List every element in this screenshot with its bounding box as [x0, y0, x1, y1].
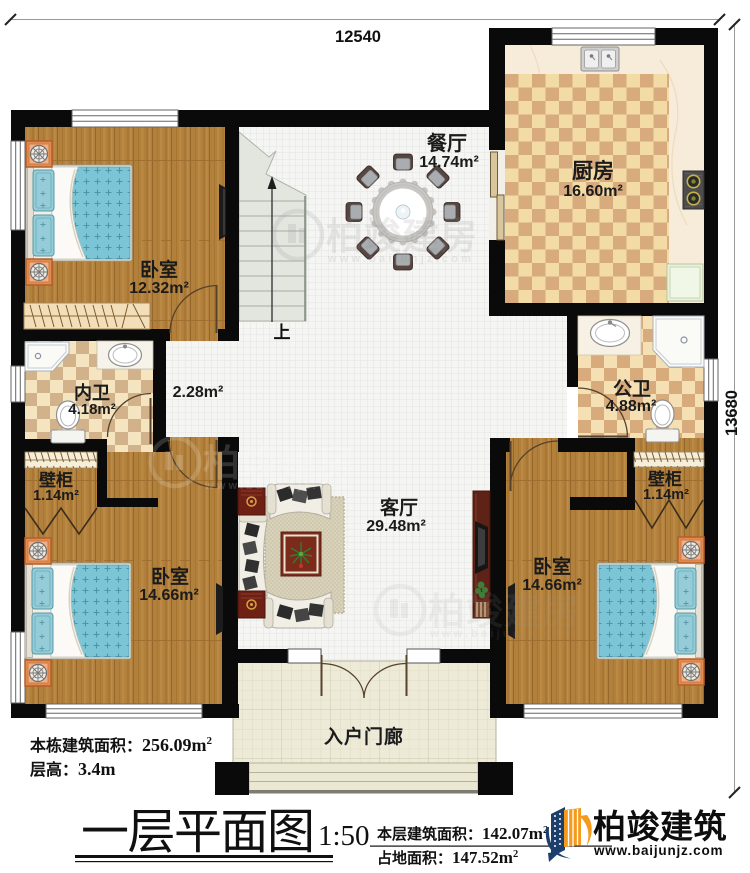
- svg-text:本栋建筑面积：256.09m2: 本栋建筑面积：256.09m2: [30, 735, 213, 755]
- svg-text:上: 上: [274, 323, 291, 342]
- svg-text:厨房: 厨房: [572, 159, 614, 183]
- svg-text:卧室: 卧室: [151, 565, 189, 588]
- svg-text:柏竣建筑: 柏竣建筑: [593, 808, 727, 845]
- svg-text:12.32m²: 12.32m²: [129, 280, 189, 297]
- svg-text:1.14m²: 1.14m²: [33, 488, 79, 504]
- svg-text:公卫: 公卫: [613, 378, 651, 400]
- svg-text:卧室: 卧室: [533, 555, 571, 578]
- svg-text:16.60m²: 16.60m²: [563, 183, 623, 200]
- svg-text:12540: 12540: [335, 28, 381, 46]
- svg-text:一层平面图: 一层平面图: [81, 806, 314, 859]
- svg-text:层高：3.4m: 层高：3.4m: [30, 759, 116, 779]
- svg-text:14.66m²: 14.66m²: [139, 587, 199, 604]
- svg-text:29.48m²: 29.48m²: [366, 518, 426, 535]
- svg-text:入户门廊: 入户门廊: [324, 725, 404, 748]
- svg-text:www.baijunjz.com: www.baijunjz.com: [327, 253, 474, 265]
- svg-text:4.88m²: 4.88m²: [606, 398, 657, 415]
- svg-text:www.baijunjz.com: www.baijunjz.com: [593, 843, 723, 858]
- svg-text:13680: 13680: [723, 390, 741, 436]
- svg-text:www.baijunjz.com: www.baijunjz.com: [429, 628, 576, 640]
- svg-text:本层建筑面积：142.07m2: 本层建筑面积：142.07m2: [377, 824, 548, 843]
- svg-text:www.baijunjz.com: www.baijunjz.com: [204, 480, 351, 492]
- svg-text:卧室: 卧室: [140, 258, 178, 281]
- svg-text:4.18m²: 4.18m²: [68, 401, 116, 418]
- svg-text:占地面积：147.52m2: 占地面积：147.52m2: [377, 848, 518, 867]
- svg-text:柏竣建房: 柏竣建房: [203, 442, 355, 484]
- svg-text:1.14m²: 1.14m²: [643, 487, 689, 503]
- svg-text:壁柜: 壁柜: [39, 470, 73, 490]
- svg-text:1:50: 1:50: [318, 820, 370, 852]
- svg-text:餐厅: 餐厅: [427, 131, 467, 155]
- svg-text:14.74m²: 14.74m²: [419, 154, 479, 171]
- svg-text:柏竣建房: 柏竣建房: [326, 215, 478, 257]
- svg-text:壁柜: 壁柜: [648, 469, 682, 489]
- svg-text:柏竣建房: 柏竣建房: [428, 590, 580, 632]
- svg-text:客厅: 客厅: [380, 496, 418, 519]
- svg-text:2.28m²: 2.28m²: [173, 384, 224, 401]
- svg-text:内卫: 内卫: [74, 382, 110, 403]
